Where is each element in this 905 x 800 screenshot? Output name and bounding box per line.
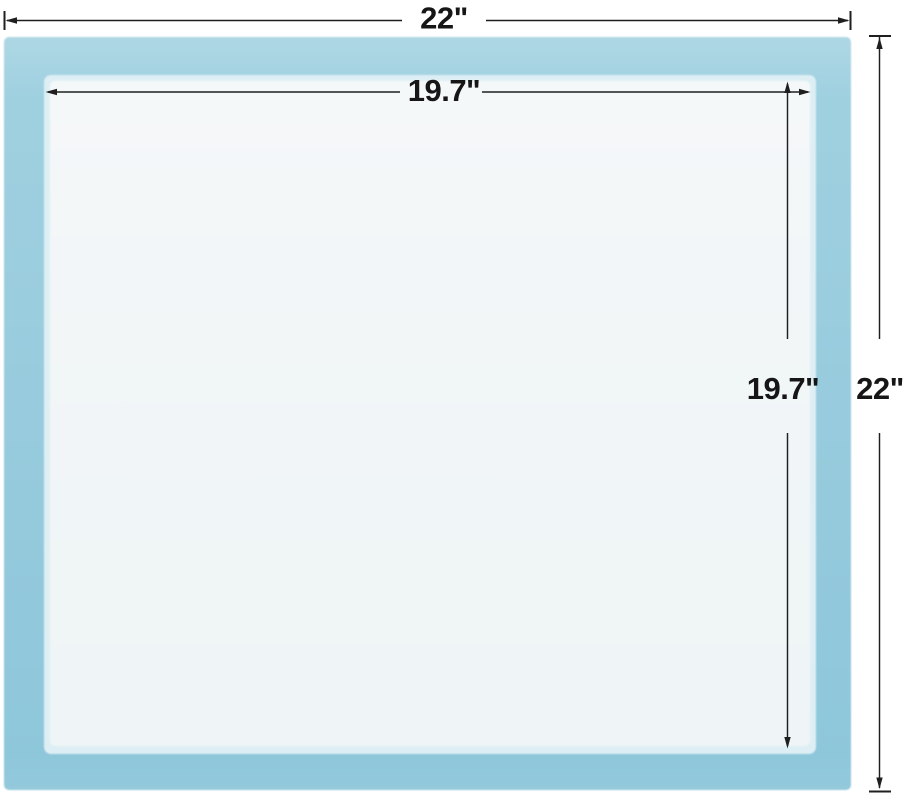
svg-text:19.7": 19.7" [408,73,481,108]
svg-text:19.7": 19.7" [747,371,820,406]
svg-text:22": 22" [420,1,468,36]
svg-text:22": 22" [856,371,904,406]
